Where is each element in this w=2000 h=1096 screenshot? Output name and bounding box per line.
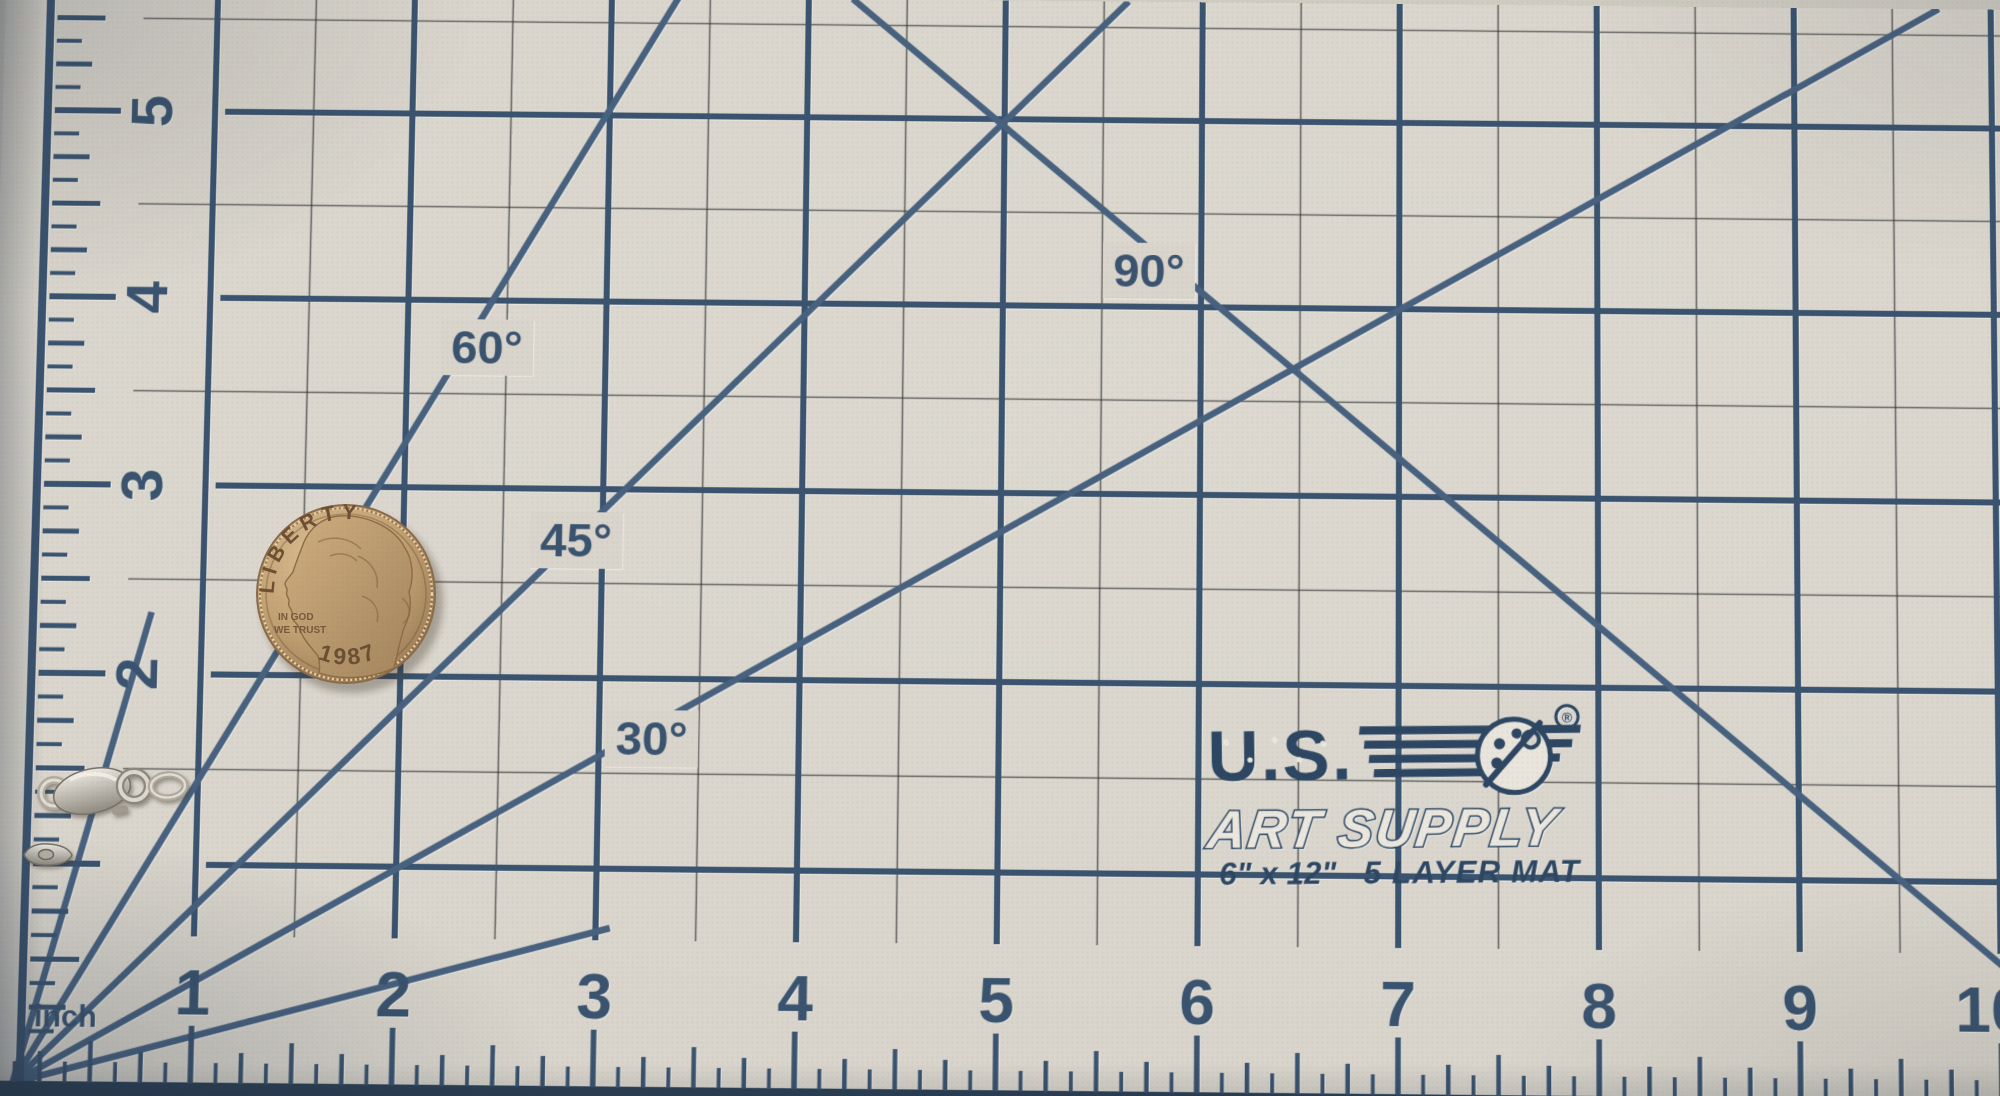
chain-end-tab <box>24 844 72 865</box>
rope-chain-necklace <box>24 761 1755 888</box>
lobster-clasp <box>41 761 186 821</box>
end-tab-hole <box>39 850 54 860</box>
photo-scene: 30° 45° 60° 90° 5432 12345678910inch <box>0 0 2000 1096</box>
svg-text:WE TRUST: WE TRUST <box>274 625 326 636</box>
svg-text:IN GOD: IN GOD <box>278 612 314 623</box>
chain-shadow <box>87 779 1755 888</box>
quarter-coin: LIBERTY IN GOD WE TRUST 1987 <box>256 501 443 693</box>
chain-outline <box>84 775 1752 884</box>
objects-layer: LIBERTY IN GOD WE TRUST 1987 <box>0 0 2000 1096</box>
